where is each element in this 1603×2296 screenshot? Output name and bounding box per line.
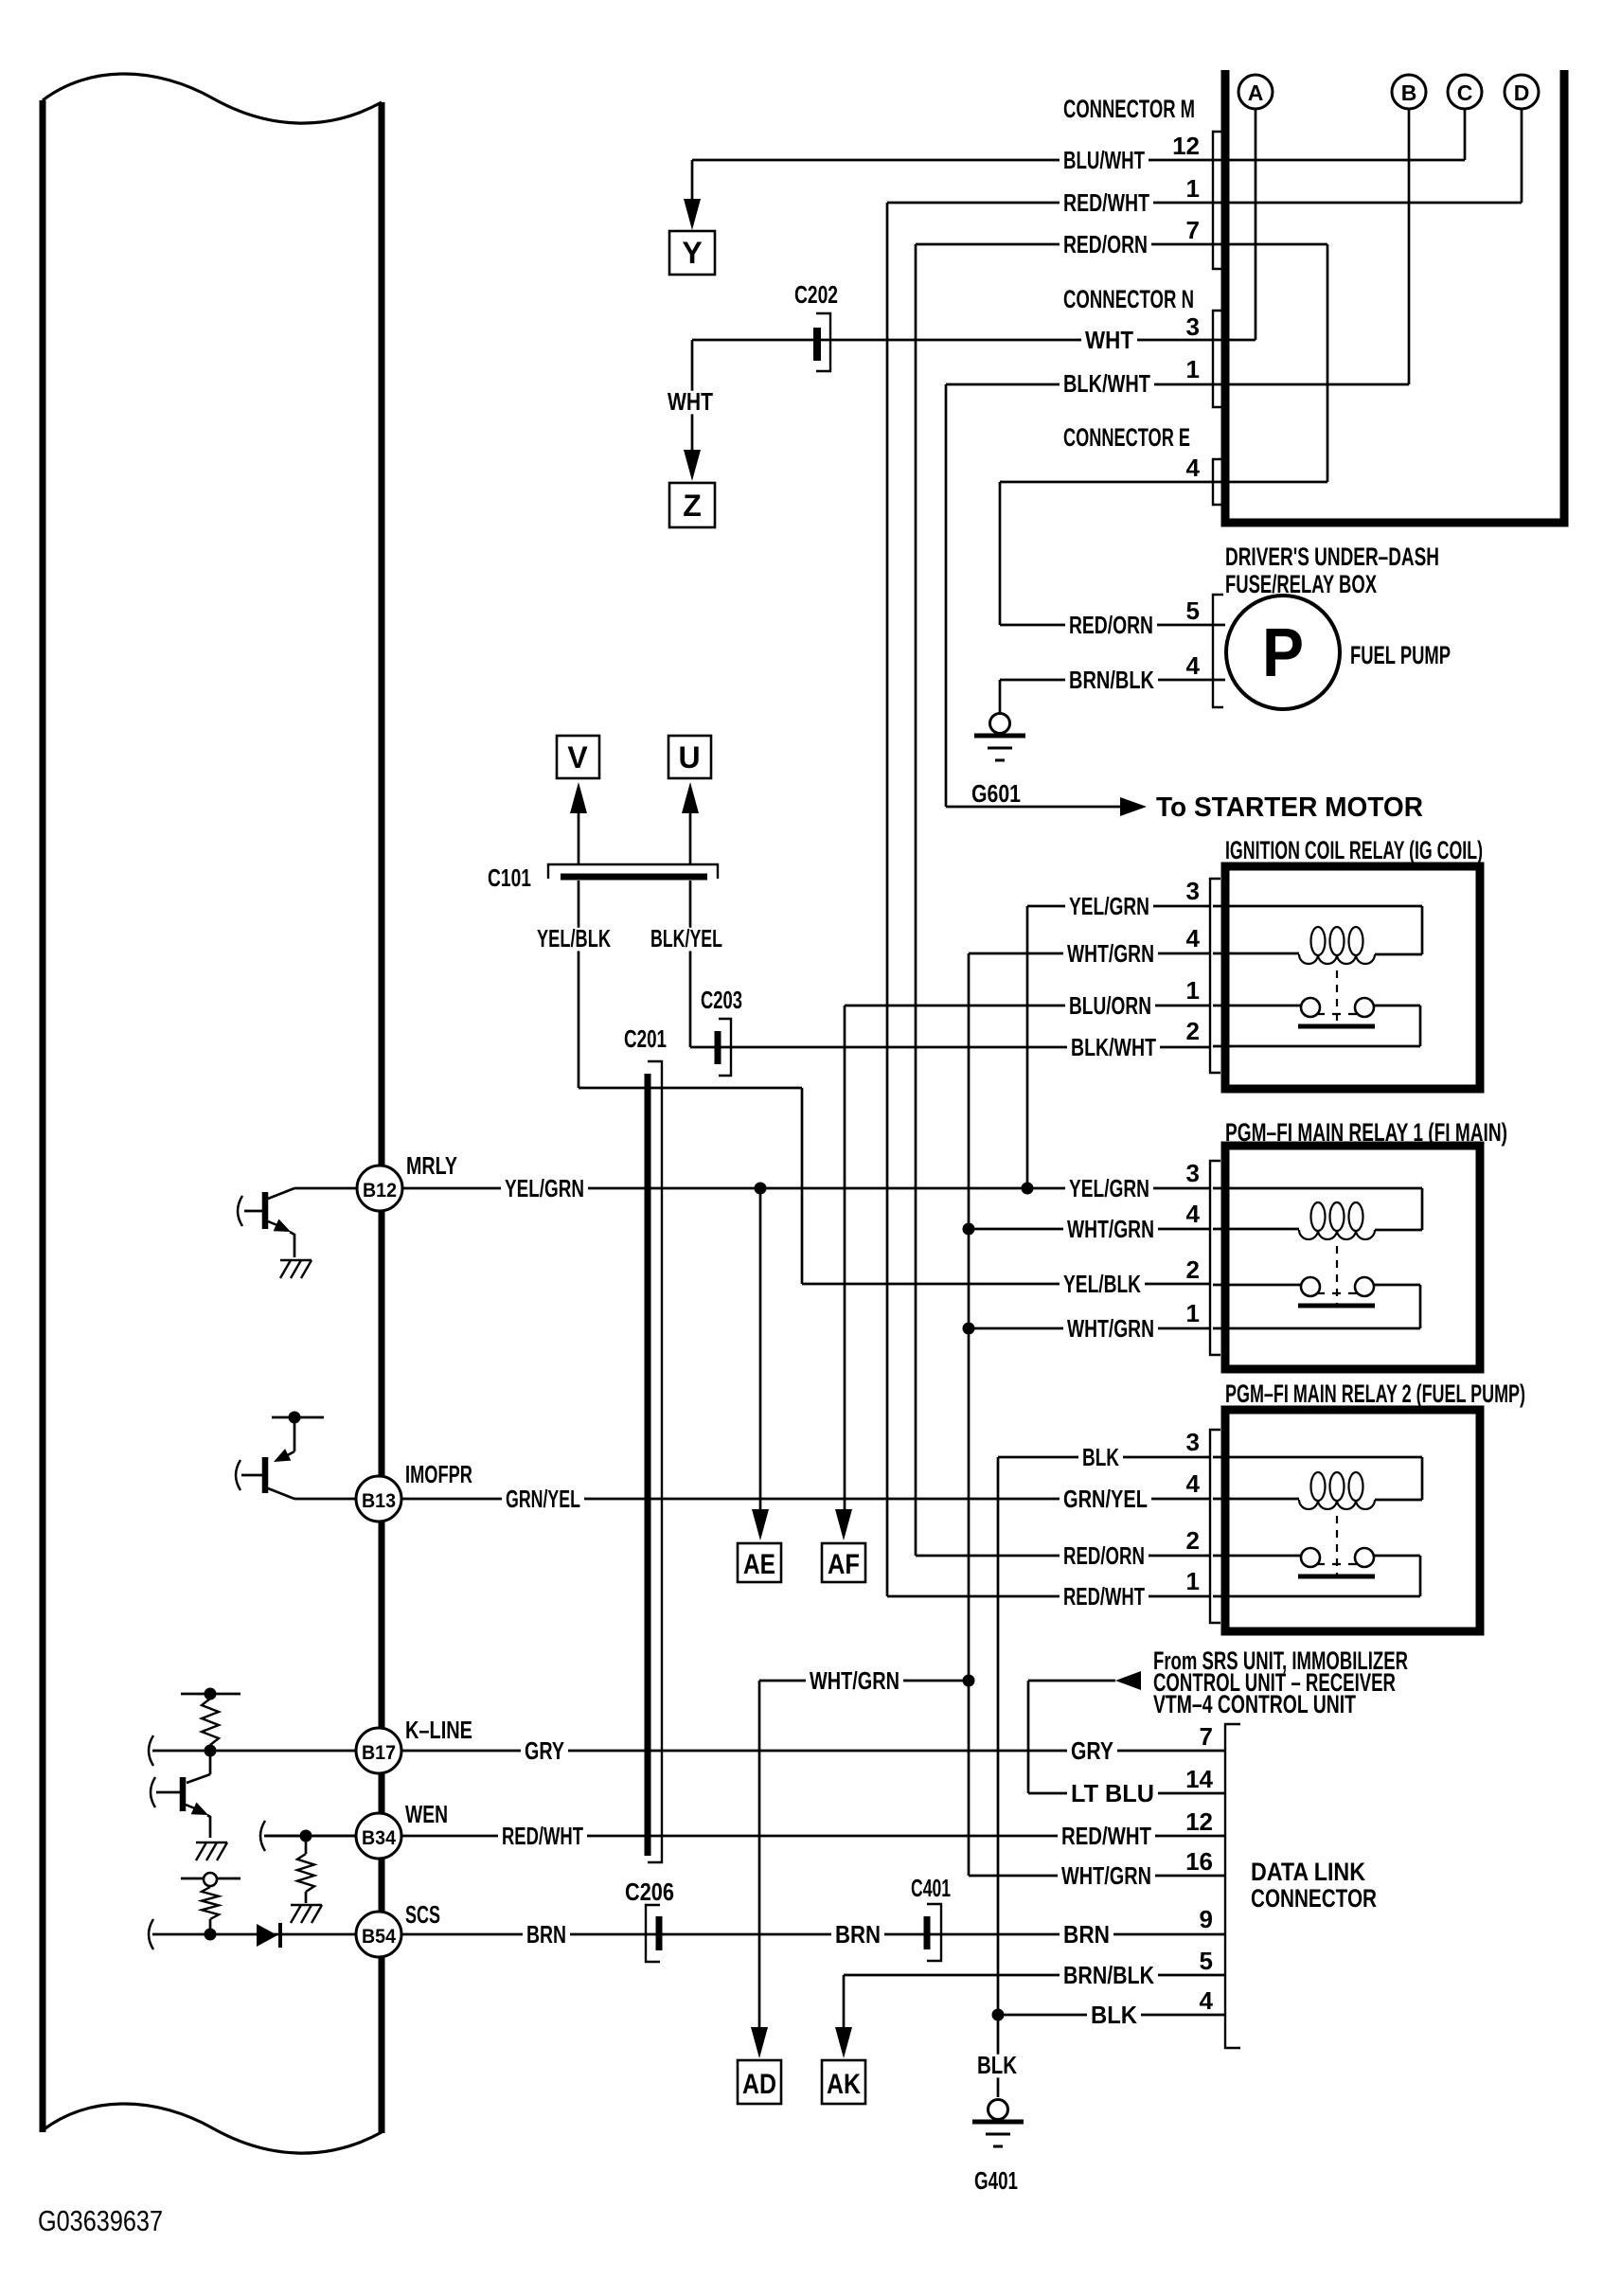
svg-text:4: 4 (1186, 1200, 1201, 1228)
svg-text:WHT/GRN: WHT/GRN (810, 1666, 899, 1695)
svg-text:5: 5 (1186, 596, 1200, 625)
svg-text:RED/WHT: RED/WHT (1063, 1582, 1145, 1611)
svg-text:WHT/GRN: WHT/GRN (1067, 1215, 1154, 1243)
svg-text:YEL/GRN: YEL/GRN (505, 1174, 584, 1202)
svg-text:YEL/BLK: YEL/BLK (537, 924, 611, 952)
svg-text:3: 3 (1186, 1159, 1200, 1187)
svg-text:YEL/GRN: YEL/GRN (1069, 1174, 1149, 1202)
svg-text:3: 3 (1186, 877, 1200, 905)
svg-text:FUSE/RELAY BOX: FUSE/RELAY BOX (1225, 570, 1377, 598)
svg-text:BLK: BLK (1082, 1443, 1119, 1471)
svg-text:BLK/WHT: BLK/WHT (1071, 1033, 1156, 1061)
svg-text:4: 4 (1200, 1986, 1214, 2015)
svg-text:A: A (1248, 80, 1264, 105)
svg-text:1: 1 (1186, 355, 1200, 383)
svg-text:CONNECTOR N: CONNECTOR N (1063, 285, 1194, 313)
svg-text:WHT: WHT (1085, 326, 1133, 354)
svg-text:C101: C101 (488, 863, 531, 892)
svg-text:5: 5 (1200, 1947, 1213, 1975)
svg-text:3: 3 (1186, 1428, 1200, 1456)
svg-text:PGM–FI MAIN RELAY 2 (FUEL PUMP: PGM–FI MAIN RELAY 2 (FUEL PUMP) (1225, 1379, 1525, 1408)
svg-text:4: 4 (1186, 651, 1201, 680)
svg-text:2: 2 (1186, 1017, 1200, 1045)
svg-text:1: 1 (1186, 1299, 1200, 1327)
svg-text:B12: B12 (363, 1180, 397, 1201)
svg-text:BRN/BLK: BRN/BLK (1069, 666, 1154, 694)
svg-text:BRN: BRN (1063, 1920, 1110, 1949)
svg-text:IGNITION COIL RELAY (IG COIL): IGNITION COIL RELAY (IG COIL) (1225, 836, 1483, 864)
svg-text:RED/WHT: RED/WHT (502, 1822, 583, 1850)
svg-text:AK: AK (827, 2069, 861, 2100)
svg-text:RED/ORN: RED/ORN (1069, 611, 1153, 639)
svg-text:CONNECTOR E: CONNECTOR E (1063, 423, 1190, 452)
svg-text:VTM–4 CONTROL UNIT: VTM–4 CONTROL UNIT (1153, 1690, 1356, 1718)
svg-text:2: 2 (1186, 1526, 1200, 1555)
svg-text:WHT/GRN: WHT/GRN (1067, 939, 1154, 968)
svg-text:MRLY: MRLY (406, 1151, 457, 1180)
svg-text:BLK/YEL: BLK/YEL (650, 924, 722, 952)
svg-text:BLK: BLK (977, 2051, 1017, 2079)
svg-text:9: 9 (1200, 1905, 1213, 1933)
svg-text:G401: G401 (974, 2166, 1018, 2195)
svg-text:BRN: BRN (835, 1920, 881, 1949)
svg-text:2: 2 (1186, 1255, 1200, 1284)
svg-text:SCS: SCS (405, 1900, 440, 1929)
svg-text:RED/ORN: RED/ORN (1063, 230, 1148, 258)
svg-text:DATA LINK: DATA LINK (1251, 1858, 1365, 1886)
svg-text:C203: C203 (701, 986, 742, 1014)
svg-text:C401: C401 (911, 1874, 951, 1902)
svg-text:3: 3 (1186, 312, 1200, 341)
svg-text:B13: B13 (362, 1490, 396, 1512)
svg-text:RED/ORN: RED/ORN (1063, 1541, 1145, 1570)
svg-text:B17: B17 (362, 1742, 396, 1764)
svg-text:Y: Y (682, 236, 702, 270)
svg-text:WHT/GRN: WHT/GRN (1067, 1314, 1154, 1343)
svg-text:C201: C201 (624, 1024, 667, 1053)
svg-text:YEL/BLK: YEL/BLK (1063, 1270, 1141, 1298)
svg-text:C202: C202 (794, 280, 838, 309)
svg-text:BRN/BLK: BRN/BLK (1063, 1961, 1154, 1989)
svg-text:12: 12 (1172, 132, 1200, 160)
svg-text:B54: B54 (362, 1926, 396, 1948)
svg-text:LT BLU: LT BLU (1071, 1779, 1154, 1807)
svg-text:V: V (567, 740, 588, 774)
svg-text:YEL/GRN: YEL/GRN (1069, 892, 1149, 920)
svg-text:P: P (1262, 615, 1304, 691)
svg-text:BLU/WHT: BLU/WHT (1063, 146, 1145, 174)
svg-text:C: C (1457, 80, 1473, 105)
svg-text:GRN/YEL: GRN/YEL (506, 1485, 580, 1513)
svg-text:WHT/GRN: WHT/GRN (1061, 1861, 1151, 1890)
svg-text:1: 1 (1186, 976, 1200, 1005)
svg-text:AD: AD (742, 2069, 776, 2100)
svg-text:14: 14 (1185, 1765, 1213, 1793)
svg-text:Z: Z (683, 489, 702, 523)
svg-text:RED/WHT: RED/WHT (1063, 188, 1149, 217)
svg-text:1: 1 (1186, 174, 1200, 203)
svg-text:1: 1 (1186, 1567, 1200, 1595)
svg-text:GRN/YEL: GRN/YEL (1063, 1485, 1148, 1513)
svg-text:12: 12 (1185, 1807, 1213, 1836)
svg-text:7: 7 (1200, 1722, 1213, 1751)
svg-text:FUEL PUMP: FUEL PUMP (1350, 641, 1451, 669)
svg-text:16: 16 (1185, 1847, 1213, 1876)
svg-text:C206: C206 (625, 1878, 674, 1906)
svg-text:AE: AE (743, 1549, 775, 1580)
svg-text:BLU/ORN: BLU/ORN (1069, 991, 1151, 1020)
svg-text:4: 4 (1186, 454, 1201, 482)
svg-text:G601: G601 (971, 779, 1021, 808)
svg-text:4: 4 (1186, 924, 1201, 952)
svg-text:AF: AF (828, 1549, 860, 1580)
svg-text:GRY: GRY (1071, 1736, 1113, 1765)
svg-text:7: 7 (1186, 216, 1200, 244)
svg-text:RED/WHT: RED/WHT (1061, 1822, 1151, 1850)
svg-text:BRN: BRN (526, 1920, 566, 1949)
svg-text:DRIVER'S UNDER–DASH: DRIVER'S UNDER–DASH (1225, 543, 1439, 571)
svg-text:BLK: BLK (1091, 2001, 1137, 2029)
svg-text:CONNECTOR: CONNECTOR (1251, 1884, 1377, 1913)
svg-text:4: 4 (1186, 1469, 1201, 1498)
svg-text:WHT: WHT (668, 387, 713, 416)
svg-text:D: D (1514, 80, 1530, 105)
svg-text:U: U (678, 740, 700, 774)
svg-text:G03639637: G03639637 (38, 2204, 163, 2237)
svg-text:IMOFPR: IMOFPR (405, 1460, 472, 1488)
svg-text:BLK/WHT: BLK/WHT (1063, 369, 1150, 398)
svg-text:GRY: GRY (525, 1736, 564, 1765)
svg-text:WEN: WEN (405, 1800, 448, 1828)
svg-text:To STARTER MOTOR: To STARTER MOTOR (1156, 792, 1423, 823)
svg-text:K–LINE: K–LINE (405, 1716, 472, 1744)
svg-text:B: B (1401, 80, 1417, 105)
svg-text:CONNECTOR M: CONNECTOR M (1063, 95, 1195, 123)
svg-text:B34: B34 (362, 1827, 396, 1849)
